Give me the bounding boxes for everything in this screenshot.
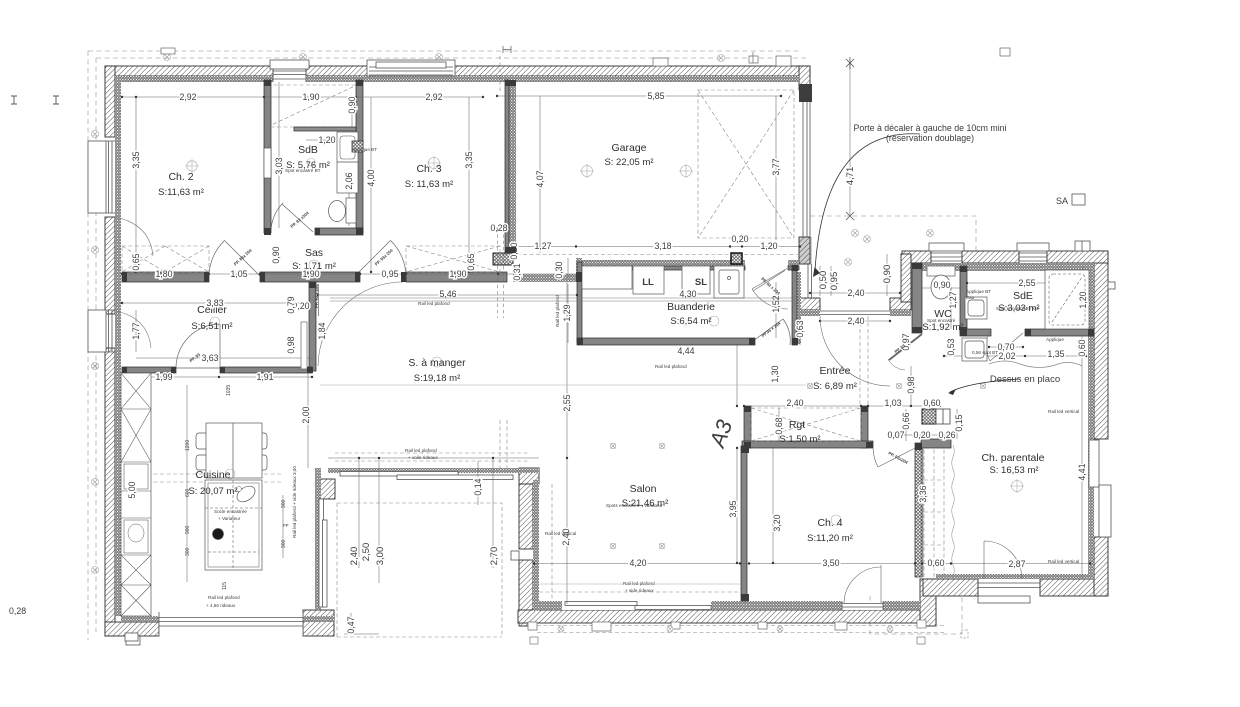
svg-text:0,65: 0,65 bbox=[131, 253, 141, 270]
svg-text:S:19,18 m²: S:19,18 m² bbox=[414, 373, 460, 384]
svg-text:Spot encastré: Spot encastré bbox=[927, 318, 956, 323]
svg-text:3,83: 3,83 bbox=[206, 298, 223, 308]
svg-text:Buanderie: Buanderie bbox=[667, 301, 715, 313]
svg-text:3,00: 3,00 bbox=[375, 547, 386, 566]
svg-text:1,99: 1,99 bbox=[155, 372, 172, 382]
svg-text:0,20: 0,20 bbox=[913, 430, 930, 440]
svg-text:S:11,20 m²: S:11,20 m² bbox=[807, 533, 853, 544]
svg-text:2,40: 2,40 bbox=[847, 316, 864, 326]
svg-text:0,95: 0,95 bbox=[381, 269, 398, 279]
svg-text:1,05: 1,05 bbox=[230, 269, 247, 279]
svg-text:5,46: 5,46 bbox=[439, 289, 456, 299]
svg-text:1035: 1035 bbox=[226, 385, 232, 396]
svg-text:Ch. parentale: Ch. parentale bbox=[981, 452, 1044, 464]
svg-text:Dessus en placo: Dessus en placo bbox=[990, 374, 1060, 385]
svg-text:+ side rideaux: + side rideaux bbox=[625, 588, 654, 593]
svg-text:S: 22,05 m²: S: 22,05 m² bbox=[604, 157, 653, 168]
svg-text:3,36: 3,36 bbox=[918, 485, 928, 502]
svg-text:Ch. 3: Ch. 3 bbox=[416, 163, 441, 175]
svg-text:900: 900 bbox=[185, 525, 191, 534]
svg-text:1200: 1200 bbox=[185, 440, 191, 451]
svg-text:0,31: 0,31 bbox=[512, 263, 522, 280]
svg-text:1,29: 1,29 bbox=[562, 304, 572, 321]
svg-text:2,70: 2,70 bbox=[489, 547, 500, 566]
svg-text:Cuisine: Cuisine bbox=[195, 469, 230, 481]
svg-text:900: 900 bbox=[281, 539, 287, 548]
svg-text:SdE: SdE bbox=[1013, 290, 1033, 302]
svg-text:Rail led plafond: Rail led plafond bbox=[555, 295, 560, 327]
svg-text:SL: SL bbox=[695, 277, 707, 288]
svg-text:0,68: 0,68 bbox=[774, 417, 784, 434]
svg-text:2,50: 2,50 bbox=[361, 543, 372, 562]
svg-text:PP: PP bbox=[283, 523, 289, 528]
svg-text:S: 11,63 m²: S: 11,63 m² bbox=[405, 179, 453, 190]
svg-text:Sas: Sas bbox=[305, 247, 323, 259]
svg-text:2,92: 2,92 bbox=[179, 92, 196, 102]
svg-text:0,47: 0,47 bbox=[346, 616, 356, 633]
svg-text:4,71: 4,71 bbox=[845, 167, 856, 186]
svg-text:Eau: Eau bbox=[966, 295, 975, 300]
svg-text:3,77: 3,77 bbox=[771, 158, 781, 175]
svg-text:1,27: 1,27 bbox=[534, 241, 551, 251]
svg-text:Ch. 2: Ch. 2 bbox=[168, 171, 193, 183]
svg-text:0,14: 0,14 bbox=[473, 478, 483, 495]
svg-text:3,50: 3,50 bbox=[822, 558, 839, 568]
svg-text:0,07: 0,07 bbox=[887, 430, 904, 440]
svg-text:Rail led vertical: Rail led vertical bbox=[1048, 559, 1079, 564]
svg-text:1,20: 1,20 bbox=[760, 241, 777, 251]
svg-text:Rail led plafond + vide rideau: Rail led plafond + vide rideaux 3,00 bbox=[292, 466, 297, 538]
svg-text:900: 900 bbox=[281, 499, 287, 508]
svg-text:1,20: 1,20 bbox=[1078, 291, 1088, 308]
svg-text:1,77: 1,77 bbox=[131, 322, 141, 339]
svg-text:SA: SA bbox=[1056, 196, 1068, 206]
svg-text:S:1,92 m²: S:1,92 m² bbox=[922, 322, 963, 333]
svg-text:0,98: 0,98 bbox=[906, 376, 916, 393]
svg-text:2,40: 2,40 bbox=[786, 398, 803, 408]
svg-text:0,30: 0,30 bbox=[554, 261, 564, 278]
svg-text:1,90: 1,90 bbox=[302, 92, 319, 102]
svg-text:Rail led plafond: Rail led plafond bbox=[208, 595, 240, 600]
svg-text:+ Variateur: + Variateur bbox=[218, 516, 241, 521]
svg-text:0,63: 0,63 bbox=[795, 320, 805, 337]
svg-text:Applique: Applique bbox=[1046, 337, 1064, 342]
svg-text:3,35: 3,35 bbox=[131, 151, 141, 168]
svg-text:0,90: 0,90 bbox=[271, 246, 281, 263]
svg-text:S:6,54 m²: S:6,54 m² bbox=[670, 316, 711, 327]
svg-text:S: 6,89 m²: S: 6,89 m² bbox=[813, 381, 857, 392]
svg-text:1,84: 1,84 bbox=[317, 322, 327, 339]
svg-text:1,90: 1,90 bbox=[449, 269, 466, 279]
svg-text:0,90: 0,90 bbox=[882, 265, 893, 284]
svg-text:Spots encastrés + Variateur: Spots encastrés + Variateur bbox=[606, 503, 663, 508]
svg-text:300: 300 bbox=[185, 547, 191, 556]
svg-text:1,30: 1,30 bbox=[770, 365, 780, 382]
svg-text:2,92: 2,92 bbox=[425, 92, 442, 102]
svg-text:4,07: 4,07 bbox=[535, 170, 545, 187]
svg-text:3,63: 3,63 bbox=[201, 353, 218, 363]
svg-text:3,20: 3,20 bbox=[772, 514, 782, 531]
svg-text:0,98: 0,98 bbox=[286, 336, 296, 353]
svg-text:1,27: 1,27 bbox=[948, 291, 958, 308]
svg-text:0,15: 0,15 bbox=[954, 414, 964, 431]
svg-text:LL: LL bbox=[642, 277, 654, 288]
svg-text:S:1,50 m²: S:1,50 m² bbox=[779, 434, 820, 445]
svg-text:0,60: 0,60 bbox=[923, 398, 940, 408]
svg-text:5,85: 5,85 bbox=[647, 91, 664, 101]
svg-text:Rail led plafond: Rail led plafond bbox=[655, 364, 687, 369]
svg-text:2,40: 2,40 bbox=[349, 547, 360, 566]
svg-text:4,44: 4,44 bbox=[677, 346, 694, 356]
svg-text:0,56 spot BT: 0,56 spot BT bbox=[972, 350, 998, 355]
svg-text:1,20: 1,20 bbox=[318, 135, 335, 145]
svg-text:S: 16,53 m²: S: 16,53 m² bbox=[989, 465, 1038, 476]
svg-text:4,20: 4,20 bbox=[629, 558, 646, 568]
svg-text:0,53: 0,53 bbox=[946, 338, 956, 355]
svg-text:Porte à décaler à gauche de 10: Porte à décaler à gauche de 10cm mini bbox=[853, 123, 1006, 133]
svg-text:Garage: Garage bbox=[611, 142, 646, 154]
svg-text:Applique BT: Applique BT bbox=[352, 147, 377, 152]
svg-text:3,35: 3,35 bbox=[464, 151, 474, 168]
svg-text:2,87: 2,87 bbox=[1008, 559, 1025, 569]
svg-text:1,03: 1,03 bbox=[884, 398, 901, 408]
svg-text:0,90: 0,90 bbox=[933, 280, 950, 290]
svg-text:3,95: 3,95 bbox=[728, 500, 738, 517]
svg-text:4,00: 4,00 bbox=[366, 169, 376, 186]
svg-text:0,50: 0,50 bbox=[818, 271, 829, 290]
svg-text:0,79: 0,79 bbox=[286, 296, 296, 313]
svg-text:4,30: 4,30 bbox=[679, 289, 696, 299]
svg-text:3,03: 3,03 bbox=[274, 157, 284, 174]
svg-text:0,60: 0,60 bbox=[927, 558, 944, 568]
svg-text:Entrée: Entrée bbox=[820, 365, 851, 377]
svg-text:0,66: 0,66 bbox=[901, 412, 911, 429]
svg-text:3,18: 3,18 bbox=[654, 241, 671, 251]
svg-text:0,90: 0,90 bbox=[347, 96, 357, 113]
svg-text:Spot encastré BT x 2: Spot encastré BT x 2 bbox=[996, 306, 1039, 311]
svg-text:+ voile rideaux: + voile rideaux bbox=[408, 455, 438, 460]
svg-text:S:6,51 m²: S:6,51 m² bbox=[191, 321, 232, 332]
svg-text:+ 4,66 rideaux: + 4,66 rideaux bbox=[206, 603, 236, 608]
svg-text:1,35: 1,35 bbox=[1047, 349, 1064, 359]
svg-text:2,06: 2,06 bbox=[344, 172, 354, 189]
svg-text:Rail led vertical: Rail led vertical bbox=[545, 531, 576, 536]
svg-text:5,00: 5,00 bbox=[127, 481, 137, 498]
svg-text:115: 115 bbox=[222, 582, 228, 590]
svg-text:Rail led plafond: Rail led plafond bbox=[418, 301, 450, 306]
svg-text:1,90: 1,90 bbox=[302, 269, 319, 279]
svg-text:0,60: 0,60 bbox=[1077, 339, 1087, 356]
svg-text:Spot encastré BT: Spot encastré BT bbox=[285, 168, 321, 173]
svg-text:Rail led plafond: Rail led plafond bbox=[623, 581, 655, 586]
svg-text:Rail led plafond: Rail led plafond bbox=[405, 448, 437, 453]
svg-text:0,65: 0,65 bbox=[466, 253, 476, 270]
svg-text:4,41: 4,41 bbox=[1077, 463, 1087, 480]
svg-text:Applique BT: Applique BT bbox=[966, 289, 991, 294]
svg-text:Rail led vertical: Rail led vertical bbox=[1048, 409, 1079, 414]
svg-text:S:11,63 m²: S:11,63 m² bbox=[158, 187, 204, 198]
svg-text:0,28: 0,28 bbox=[490, 223, 507, 233]
svg-text:S. à manger: S. à manger bbox=[408, 357, 466, 369]
svg-text:1,91: 1,91 bbox=[256, 372, 273, 382]
svg-text:Rgt: Rgt bbox=[789, 419, 805, 431]
svg-text:1,80: 1,80 bbox=[155, 269, 172, 279]
svg-text:Salon: Salon bbox=[630, 483, 657, 495]
svg-text:Ch. 4: Ch. 4 bbox=[817, 517, 842, 529]
svg-text:Socle encastrée: Socle encastrée bbox=[214, 509, 247, 514]
svg-text:600: 600 bbox=[185, 488, 191, 497]
svg-text:0,95: 0,95 bbox=[829, 272, 840, 291]
svg-text:2,00: 2,00 bbox=[301, 406, 311, 423]
svg-text:2,02: 2,02 bbox=[998, 351, 1015, 361]
svg-text:0,28: 0,28 bbox=[9, 606, 26, 616]
svg-text:SdB: SdB bbox=[298, 144, 318, 156]
svg-text:0,20: 0,20 bbox=[731, 234, 748, 244]
svg-text:S: 20,07 m²: S: 20,07 m² bbox=[188, 486, 237, 497]
svg-text:2,40: 2,40 bbox=[847, 288, 864, 298]
svg-text:2,55: 2,55 bbox=[1018, 278, 1035, 288]
svg-text:2,55: 2,55 bbox=[562, 394, 572, 411]
